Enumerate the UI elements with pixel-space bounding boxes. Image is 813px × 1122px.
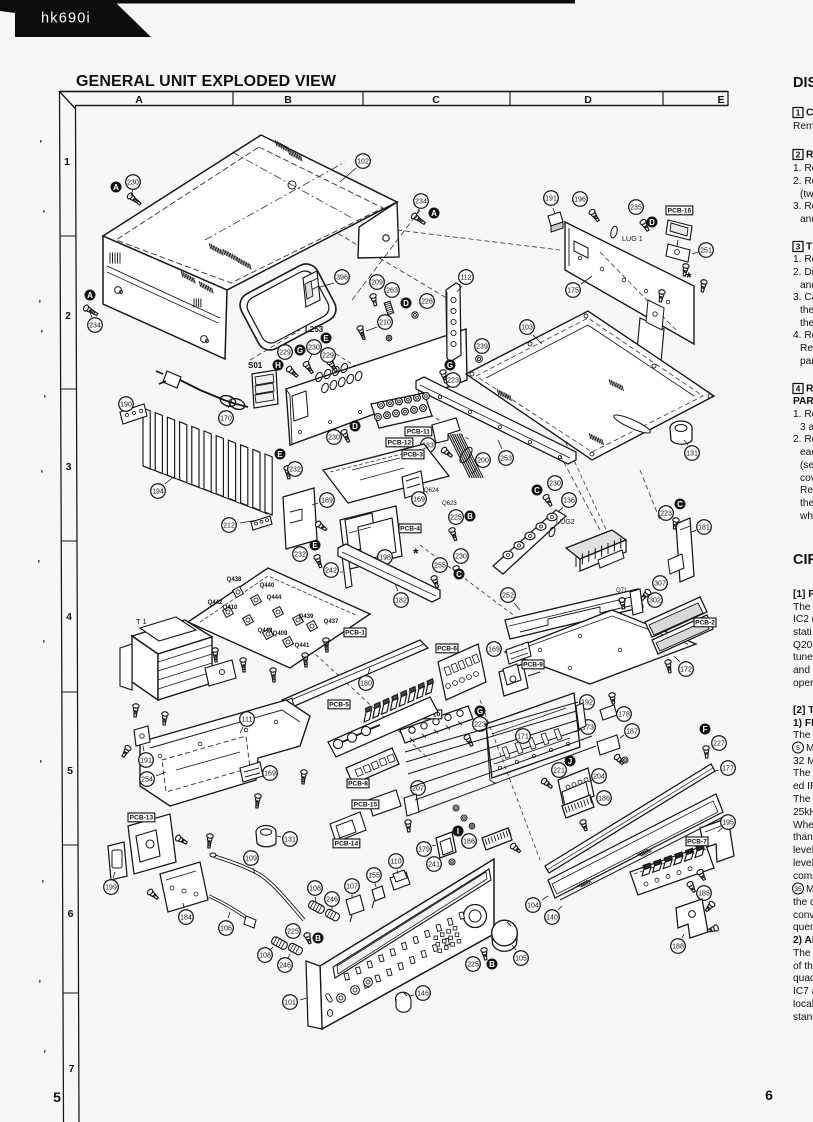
svg-text:Q438: Q438: [227, 577, 242, 583]
svg-text:182: 182: [395, 598, 407, 605]
svg-text:IC7 a: IC7 a: [793, 986, 813, 997]
svg-text:MH: MH: [806, 743, 813, 754]
svg-text:Q71: Q71: [616, 588, 628, 594]
svg-text:180: 180: [360, 681, 372, 688]
svg-text:D: D: [584, 94, 592, 106]
svg-text:189: 189: [321, 498, 333, 505]
svg-text:Q439: Q439: [299, 614, 314, 620]
svg-text:191: 191: [140, 758, 152, 765]
svg-text:C: C: [677, 500, 683, 509]
svg-text:225: 225: [467, 962, 479, 969]
svg-text:235: 235: [630, 205, 642, 212]
svg-text:230: 230: [549, 481, 561, 488]
svg-text:(see: (see: [800, 460, 813, 471]
svg-text:146: 146: [417, 991, 429, 998]
svg-text:ed IF: ed IF: [793, 781, 813, 792]
svg-text:Removing: Removing: [793, 121, 813, 132]
svg-text:1) FM: 1) FM: [793, 718, 813, 729]
svg-text:228: 228: [421, 299, 433, 306]
svg-text:PCB-2: PCB-2: [695, 620, 715, 627]
svg-text:PCB-12: PCB-12: [388, 440, 412, 447]
svg-text:E: E: [277, 450, 283, 459]
svg-text:170: 170: [220, 416, 232, 423]
svg-text:32 M: 32 M: [793, 756, 813, 767]
svg-text:195: 195: [722, 820, 734, 827]
svg-text:C: C: [534, 486, 540, 495]
svg-text:Q444: Q444: [267, 595, 282, 601]
svg-text:2. Remo: 2. Remo: [793, 176, 813, 187]
svg-text:of th: of th: [793, 961, 813, 972]
svg-text:the le: the le: [800, 318, 813, 329]
svg-text:155: 155: [368, 873, 380, 880]
svg-text:C: C: [456, 570, 462, 579]
svg-text:188: 188: [672, 944, 684, 951]
svg-text:184: 184: [180, 915, 192, 922]
svg-text:oper: oper: [793, 678, 813, 689]
svg-text:254: 254: [141, 777, 153, 784]
svg-text:D: D: [403, 299, 409, 308]
svg-text:D: D: [352, 422, 358, 431]
svg-text:110: 110: [390, 859, 401, 866]
svg-text:S01: S01: [248, 361, 263, 370]
svg-text:Q623: Q623: [442, 501, 457, 507]
svg-text:5: 5: [53, 1089, 61, 1105]
svg-text:quad: quad: [793, 973, 813, 984]
svg-text:and t: and t: [793, 665, 813, 676]
svg-text:MH: MH: [806, 884, 813, 895]
svg-text:Q441: Q441: [295, 643, 310, 649]
svg-text:stati: stati: [793, 627, 812, 638]
svg-text:The F: The F: [793, 730, 813, 741]
svg-text:R: R: [806, 150, 813, 161]
svg-text:225: 225: [287, 929, 299, 936]
svg-text:B: B: [284, 94, 292, 106]
svg-text:25kH: 25kH: [793, 807, 813, 818]
svg-text:251: 251: [700, 248, 712, 255]
svg-text:246: 246: [326, 897, 338, 904]
svg-text:186: 186: [463, 839, 475, 846]
svg-text:252: 252: [502, 593, 514, 600]
svg-text:IC2 (: IC2 (: [793, 614, 813, 625]
svg-text:5: 5: [67, 765, 73, 777]
svg-text:230: 230: [308, 345, 320, 352]
svg-text:A: A: [431, 209, 437, 218]
svg-text:LUG2: LUG2: [556, 517, 575, 526]
svg-text:2: 2: [796, 150, 801, 160]
svg-text:104: 104: [527, 903, 539, 910]
svg-text:239: 239: [476, 344, 488, 351]
svg-text:1. Rem: 1. Rem: [793, 409, 813, 420]
svg-text:207: 207: [412, 786, 424, 793]
svg-text:1. Remo: 1. Remo: [793, 254, 813, 265]
svg-text:234: 234: [415, 199, 427, 206]
svg-text:local: local: [793, 999, 813, 1010]
svg-text:and p: and p: [800, 214, 813, 225]
svg-text:PCB-9: PCB-9: [523, 662, 543, 669]
svg-text:PCB-13: PCB-13: [130, 815, 154, 822]
svg-text:204: 204: [593, 774, 605, 781]
svg-text:E: E: [717, 94, 724, 106]
svg-text:102: 102: [357, 159, 369, 166]
svg-text:the fr: the fr: [800, 305, 813, 316]
svg-text:PCB-14: PCB-14: [335, 841, 359, 848]
svg-text:6: 6: [68, 908, 74, 920]
svg-text:140: 140: [546, 915, 558, 922]
svg-text:4: 4: [796, 384, 801, 394]
svg-text:191: 191: [545, 196, 557, 203]
svg-text:3: 3: [66, 461, 72, 473]
svg-text:Rem: Rem: [800, 485, 813, 496]
svg-text:227: 227: [713, 741, 725, 748]
svg-text:199: 199: [105, 885, 117, 892]
svg-text:G: G: [447, 361, 453, 370]
svg-text:181: 181: [698, 525, 710, 532]
svg-text:C: C: [806, 108, 813, 119]
svg-text:4: 4: [66, 611, 72, 623]
svg-text:C: C: [432, 94, 440, 106]
svg-text:2: 2: [65, 310, 71, 322]
svg-text:Q443: Q443: [258, 628, 273, 634]
svg-text:panel: panel: [800, 356, 813, 367]
svg-text:2) AM: 2) AM: [793, 935, 813, 946]
svg-text:[1] P: [1] P: [793, 589, 813, 600]
svg-text:PCB-6: PCB-6: [437, 646, 457, 653]
svg-text:PAR: PAR: [793, 396, 813, 407]
svg-text:The o: The o: [793, 768, 813, 779]
svg-text:179: 179: [418, 847, 430, 854]
svg-text:F: F: [703, 725, 708, 734]
svg-text:169: 169: [488, 647, 500, 654]
svg-text:5: 5: [796, 745, 800, 752]
svg-text:171: 171: [517, 734, 529, 741]
svg-text:PCB-11: PCB-11: [407, 429, 430, 436]
svg-text:230: 230: [455, 554, 467, 561]
svg-text:3: 3: [796, 242, 801, 252]
svg-text:234: 234: [89, 323, 101, 330]
svg-text:200: 200: [477, 458, 489, 465]
svg-text:PCB-4: PCB-4: [400, 526, 420, 533]
svg-text:PCB-5: PCB-5: [329, 702, 349, 709]
svg-text:B: B: [467, 512, 473, 521]
svg-text:253: 253: [500, 456, 512, 463]
svg-text:6: 6: [765, 1087, 773, 1103]
svg-text:212: 212: [223, 523, 235, 530]
svg-text:194: 194: [152, 489, 164, 496]
svg-text:cove: cove: [800, 473, 813, 484]
svg-text:A: A: [135, 94, 143, 106]
svg-text:PCB-3: PCB-3: [403, 452, 423, 459]
svg-text:the d: the d: [793, 897, 813, 908]
svg-text:T 1: T 1: [136, 617, 147, 626]
svg-text:When: When: [793, 820, 813, 831]
svg-text:G: G: [297, 346, 303, 355]
svg-text:186: 186: [598, 796, 610, 803]
svg-text:178: 178: [618, 712, 630, 719]
svg-text:The A: The A: [793, 948, 813, 959]
svg-text:D: D: [649, 218, 655, 227]
svg-text:GENERAL UNIT EXPLODED VIEW: GENERAL UNIT EXPLODED VIEW: [76, 73, 337, 90]
svg-text:Q409: Q409: [273, 631, 288, 637]
svg-text:229: 229: [279, 350, 291, 357]
svg-text:PCB-16: PCB-16: [668, 208, 692, 215]
svg-text:136: 136: [563, 498, 575, 505]
svg-text:B: B: [489, 960, 495, 969]
svg-text:level: level: [793, 858, 813, 869]
svg-text:A: A: [87, 291, 93, 300]
svg-text:The s: The s: [793, 602, 813, 613]
svg-text:242: 242: [325, 568, 337, 575]
svg-text:PCB-8: PCB-8: [348, 781, 368, 788]
svg-text:1. Remo: 1. Remo: [793, 163, 813, 174]
svg-text:and r: and r: [800, 280, 813, 291]
svg-text:209: 209: [371, 280, 383, 287]
svg-text:stand: stand: [793, 1012, 813, 1023]
svg-text:221: 221: [553, 768, 565, 775]
svg-text:tune: tune: [793, 652, 813, 663]
svg-text:1: 1: [796, 108, 801, 118]
svg-text:112: 112: [460, 275, 471, 282]
svg-text:35: 35: [794, 886, 802, 893]
svg-text:103: 103: [521, 325, 533, 332]
svg-text:A: A: [113, 183, 119, 192]
svg-text:G: G: [477, 707, 483, 716]
svg-text:255: 255: [434, 563, 446, 570]
svg-text:J: J: [568, 757, 572, 766]
svg-text:396: 396: [336, 275, 348, 282]
svg-text:230: 230: [127, 180, 139, 187]
svg-text:190: 190: [120, 402, 132, 409]
svg-text:Q437: Q437: [324, 619, 339, 625]
svg-text:246: 246: [279, 963, 291, 970]
svg-text:CIRC: CIRC: [793, 552, 813, 568]
svg-text:223: 223: [447, 378, 459, 385]
svg-text:T: T: [806, 242, 813, 253]
svg-text:101: 101: [284, 1000, 296, 1007]
svg-text:307: 307: [654, 581, 666, 588]
svg-text:1: 1: [64, 156, 70, 168]
svg-text:111: 111: [242, 717, 253, 724]
svg-text:R: R: [806, 384, 813, 395]
svg-text:210: 210: [379, 320, 391, 327]
svg-text:H: H: [275, 361, 281, 370]
svg-text:DISA: DISA: [793, 75, 813, 91]
svg-text:3. Care: 3. Care: [793, 292, 813, 303]
svg-text:(two s: (two s: [800, 189, 813, 200]
svg-text:169: 169: [413, 497, 425, 504]
svg-text:223: 223: [660, 511, 672, 518]
svg-text:*: *: [686, 269, 692, 285]
svg-text:level: level: [793, 845, 813, 856]
svg-text:4. Rem: 4. Rem: [793, 330, 813, 341]
svg-text:L253: L253: [305, 325, 324, 334]
svg-text:196: 196: [574, 197, 586, 204]
svg-text:232: 232: [289, 467, 301, 474]
svg-text:3. Remo: 3. Remo: [793, 201, 813, 212]
svg-text:Q440: Q440: [260, 583, 275, 589]
svg-text:E: E: [312, 541, 318, 550]
svg-text:PCB-15: PCB-15: [354, 802, 378, 809]
svg-text:232: 232: [294, 552, 306, 559]
svg-text:B: B: [315, 934, 321, 943]
svg-text:105: 105: [515, 956, 527, 963]
svg-text:229: 229: [322, 353, 334, 360]
svg-text:302: 302: [649, 598, 661, 605]
svg-text:each: each: [800, 447, 813, 458]
svg-text:107: 107: [346, 884, 358, 891]
svg-text:Q442: Q442: [208, 600, 223, 606]
svg-text:109: 109: [245, 856, 257, 863]
svg-text:LUG 1: LUG 1: [622, 234, 643, 243]
svg-text:187: 187: [626, 729, 638, 736]
svg-text:177: 177: [722, 766, 734, 773]
svg-text:*: *: [413, 545, 419, 561]
svg-text:comp: comp: [793, 871, 813, 882]
svg-text:The s: The s: [793, 794, 813, 805]
svg-text:169: 169: [264, 771, 276, 778]
svg-text:223: 223: [474, 722, 486, 729]
svg-text:the p: the p: [800, 498, 813, 509]
svg-text:172: 172: [680, 667, 692, 674]
svg-text:185: 185: [698, 891, 710, 898]
svg-text:Q20: Q20: [793, 640, 813, 651]
svg-text:225: 225: [450, 515, 462, 522]
svg-text:108: 108: [259, 953, 271, 960]
svg-text:PCB-7: PCB-7: [687, 839, 707, 846]
svg-text:131: 131: [284, 837, 296, 844]
svg-text:175: 175: [567, 288, 579, 295]
svg-text:2. Disc: 2. Disc: [793, 267, 813, 278]
svg-text:Q410: Q410: [223, 605, 238, 611]
svg-text:230: 230: [328, 435, 340, 442]
svg-text:whic: whic: [799, 511, 813, 522]
svg-text:106: 106: [220, 926, 232, 933]
svg-text:hk690i: hk690i: [41, 11, 91, 27]
svg-text:E: E: [323, 334, 329, 343]
svg-text:241: 241: [428, 862, 440, 869]
svg-text:quen: quen: [793, 922, 813, 933]
svg-text:2. Rem: 2. Rem: [793, 434, 813, 445]
svg-text:Remo: Remo: [800, 343, 813, 354]
svg-text:conv: conv: [793, 910, 813, 921]
svg-text:3 ab: 3 ab: [800, 422, 813, 433]
svg-text:108: 108: [309, 886, 321, 893]
svg-text:131: 131: [686, 451, 698, 458]
svg-text:than: than: [793, 832, 813, 843]
svg-text:[2] T: [2] T: [793, 705, 813, 716]
svg-text:Q624: Q624: [424, 488, 439, 494]
svg-text:PCB-1: PCB-1: [345, 630, 365, 637]
svg-text:7: 7: [69, 1063, 75, 1075]
svg-text:263: 263: [386, 288, 398, 295]
svg-text:I: I: [457, 827, 459, 836]
